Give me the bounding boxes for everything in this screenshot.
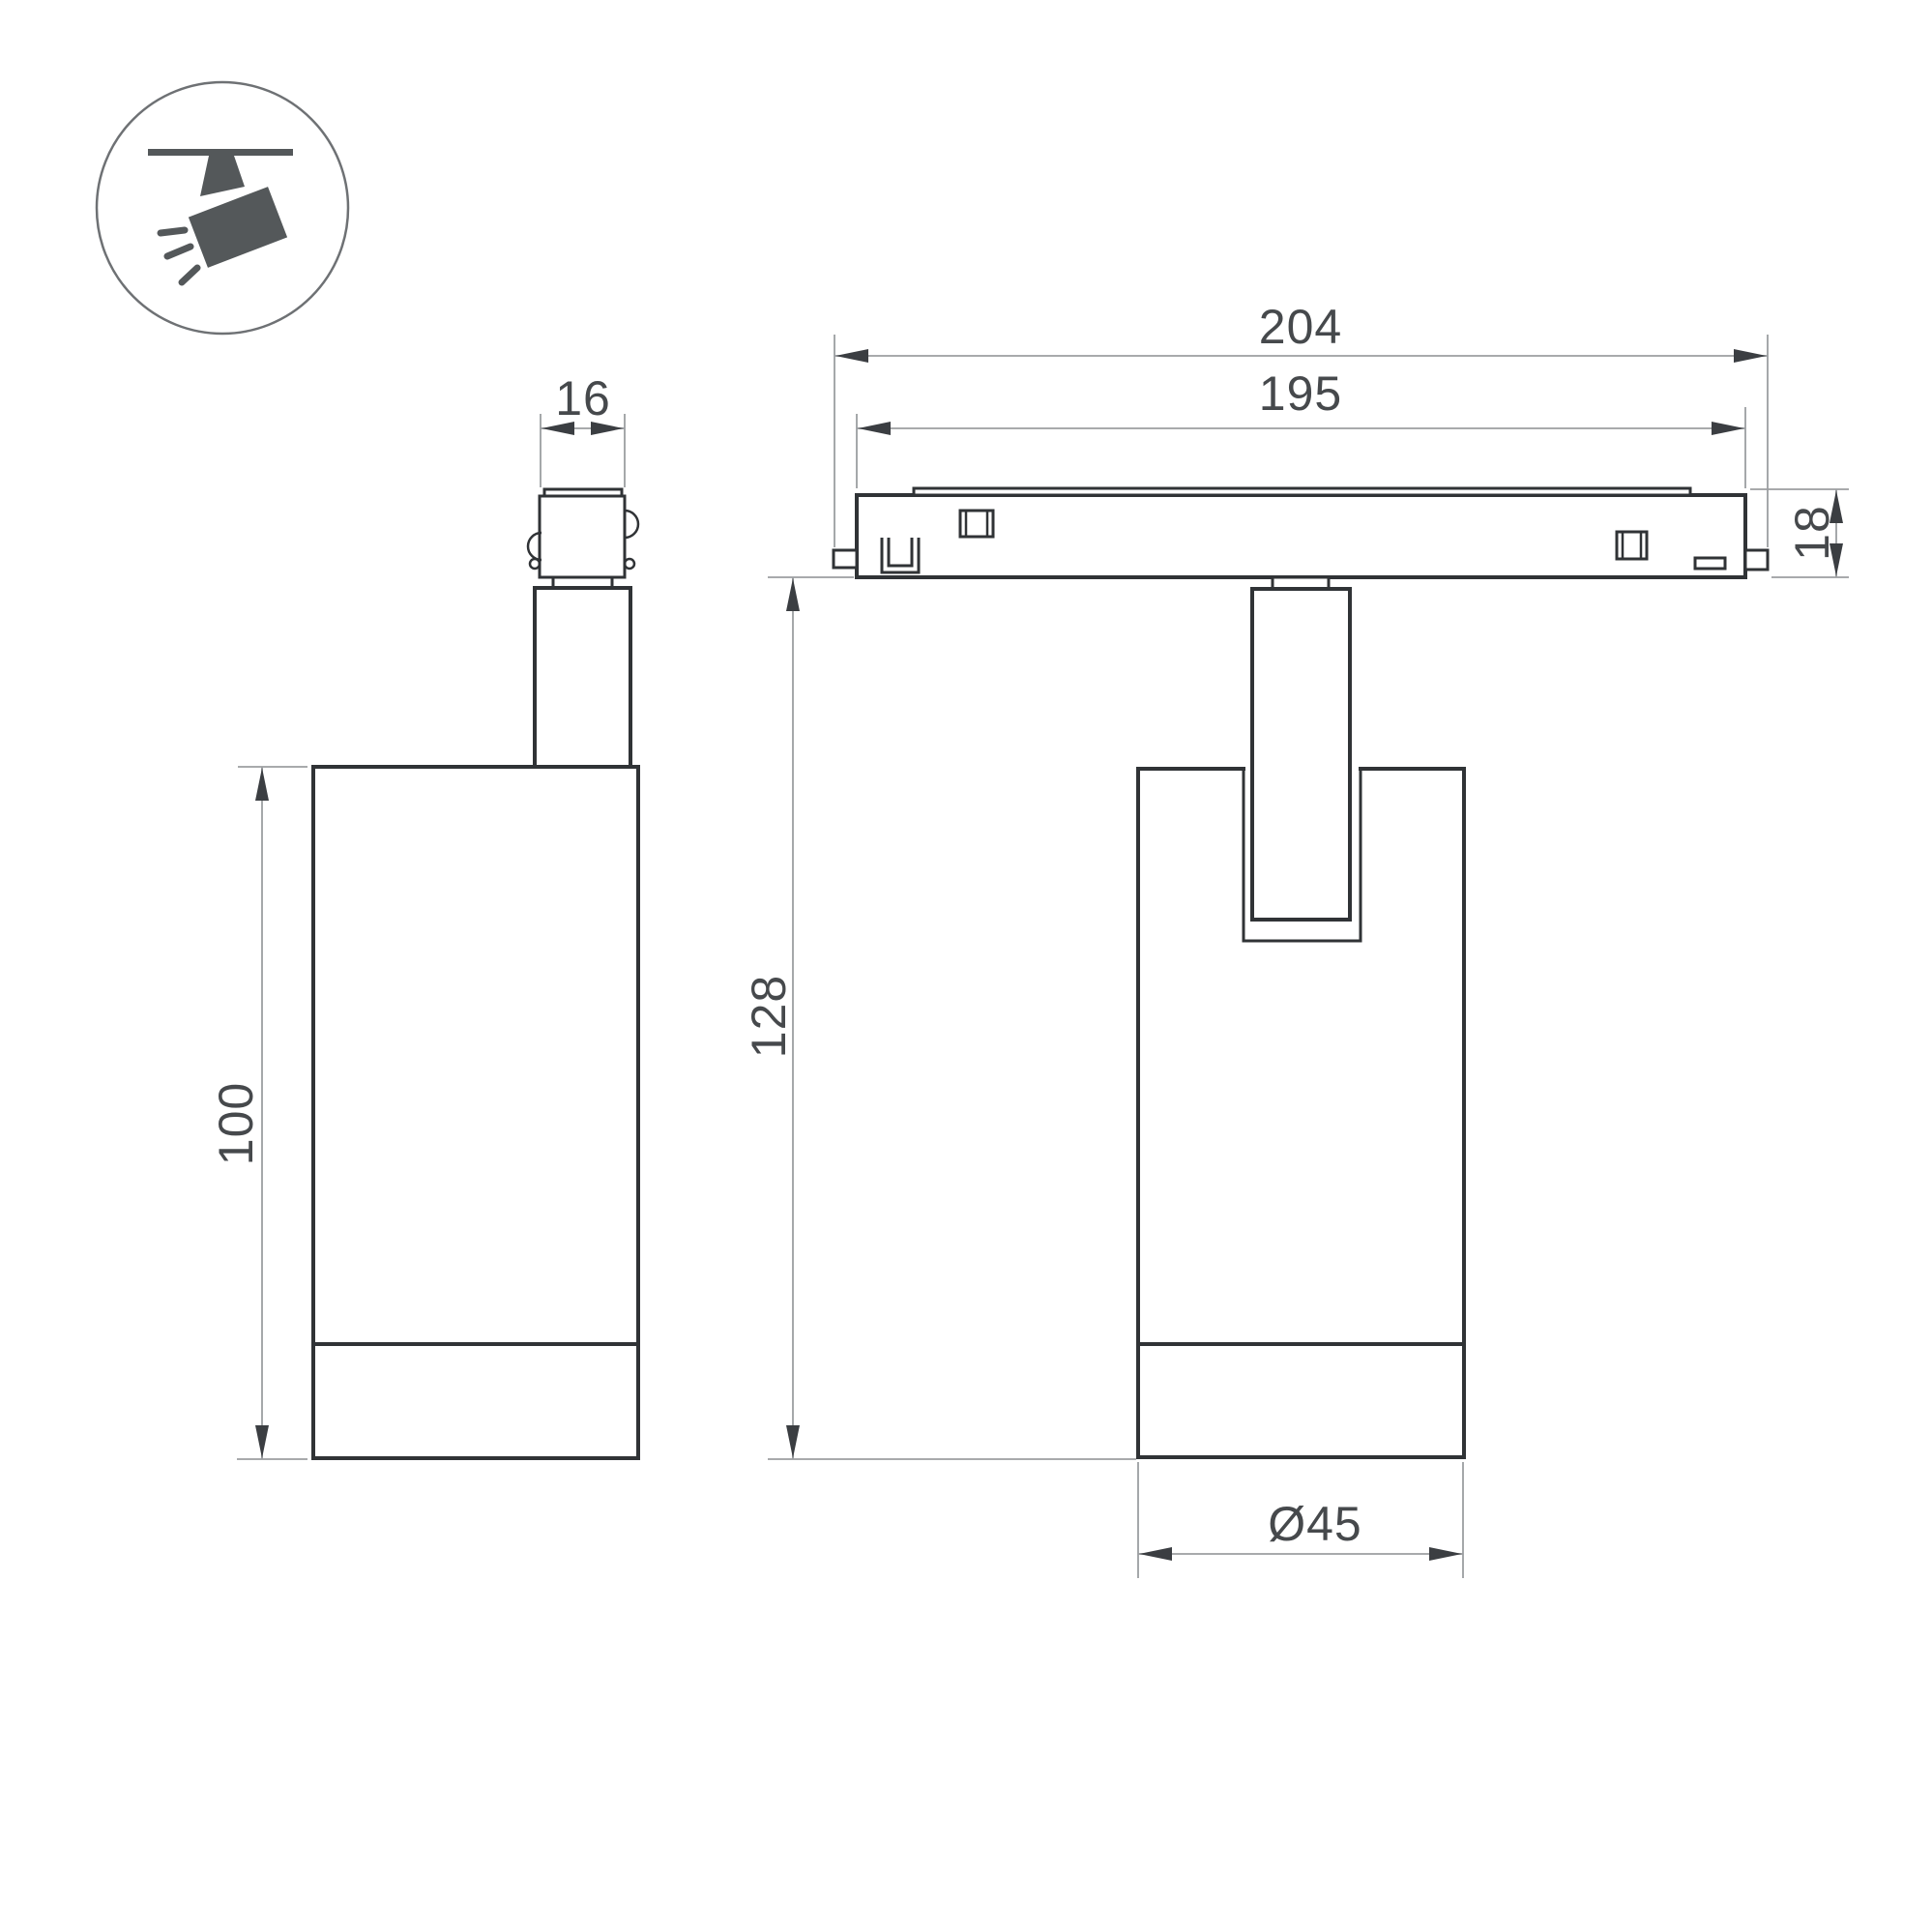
dimension-label-diameter-45: Ø45 [1268,1497,1362,1551]
dimension-label-18: 18 [1785,505,1839,561]
icon-light-ray-3 [182,268,197,282]
arrowhead-up [786,578,800,611]
dimension-body-diameter: Ø45 [1138,1462,1463,1578]
side-view [313,489,638,1458]
dimension-track-length-inner: 195 [857,366,1745,488]
dimension-connector-width: 16 [541,371,625,487]
arrowhead-left [835,349,868,363]
side-connector-right-clip [625,511,638,538]
dimension-label-195: 195 [1259,366,1342,421]
dimension-label-204: 204 [1259,300,1342,354]
track-spotlight-icon [97,82,348,334]
front-track-slot [1695,558,1725,569]
icon-light-ray-1 [161,230,185,233]
dimension-body-height: 100 [209,767,307,1459]
front-track-window-right [1617,532,1647,559]
front-stem [1252,589,1350,920]
arrowhead-down [255,1425,269,1458]
arrowhead-right [1734,349,1767,363]
dimension-overall-drop-height: 128 [742,577,1136,1459]
side-lamp-body [313,767,638,1458]
arrowhead-left [1139,1547,1172,1561]
arrowhead-up [255,768,269,801]
icon-ceiling-bar [148,149,293,156]
side-connector-box [540,496,625,577]
icon-light-ray-2 [167,247,190,256]
icon-lamp-body [189,187,287,268]
arrowhead-left [858,422,891,435]
front-track-right-tab [1745,550,1768,570]
dimension-drawing: 204 195 16 18 [0,0,1932,1932]
icon-mount-stem [200,156,245,196]
dimension-label-16: 16 [555,371,611,425]
dimension-label-100: 100 [209,1082,263,1165]
side-stem [535,588,630,769]
arrowhead-right [1712,422,1744,435]
front-track-top-plate [914,488,1690,495]
dimension-label-128: 128 [742,975,796,1058]
front-view [834,488,1768,1457]
front-track-left-tab [834,550,857,568]
arrowhead-right [1429,1547,1462,1561]
arrowhead-down [786,1425,800,1458]
